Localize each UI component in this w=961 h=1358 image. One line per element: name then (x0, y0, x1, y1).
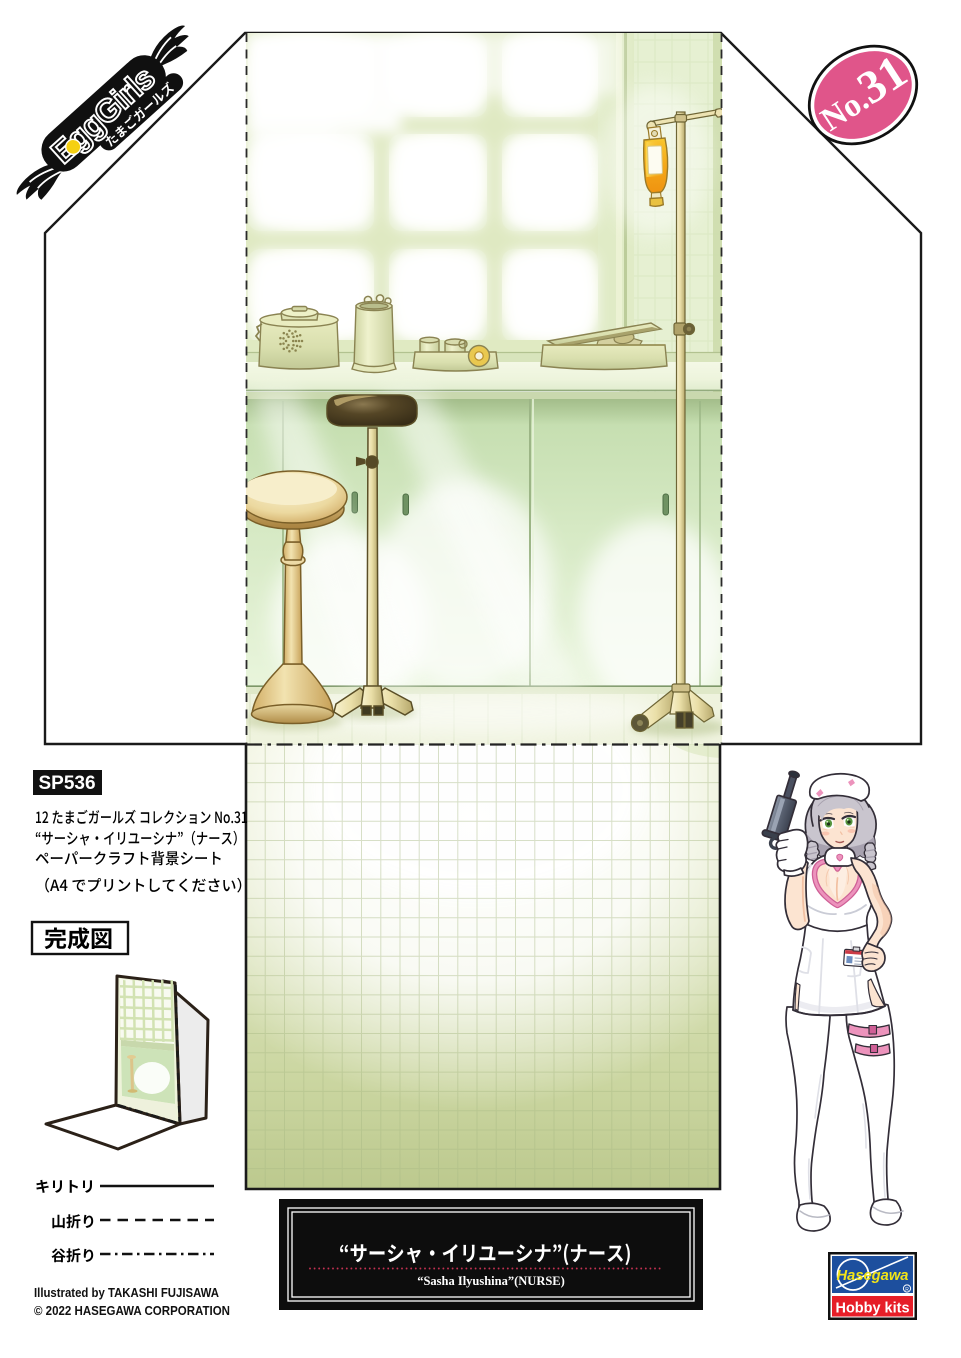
svg-text:© 2022 HASEGAWA CORPORATION: © 2022 HASEGAWA CORPORATION (34, 1303, 230, 1318)
svg-text:“Sasha Ilyushina”(NURSE): “Sasha Ilyushina”(NURSE) (417, 1274, 565, 1288)
svg-text:SP536: SP536 (38, 773, 95, 794)
svg-text:Hasegawa: Hasegawa (837, 1268, 909, 1284)
svg-text:Hobby kits: Hobby kits (836, 1300, 910, 1317)
svg-text:Illustrated by TAKASHI FUJISAW: Illustrated by TAKASHI FUJISAWA (34, 1285, 220, 1300)
svg-text:R: R (905, 1287, 909, 1293)
